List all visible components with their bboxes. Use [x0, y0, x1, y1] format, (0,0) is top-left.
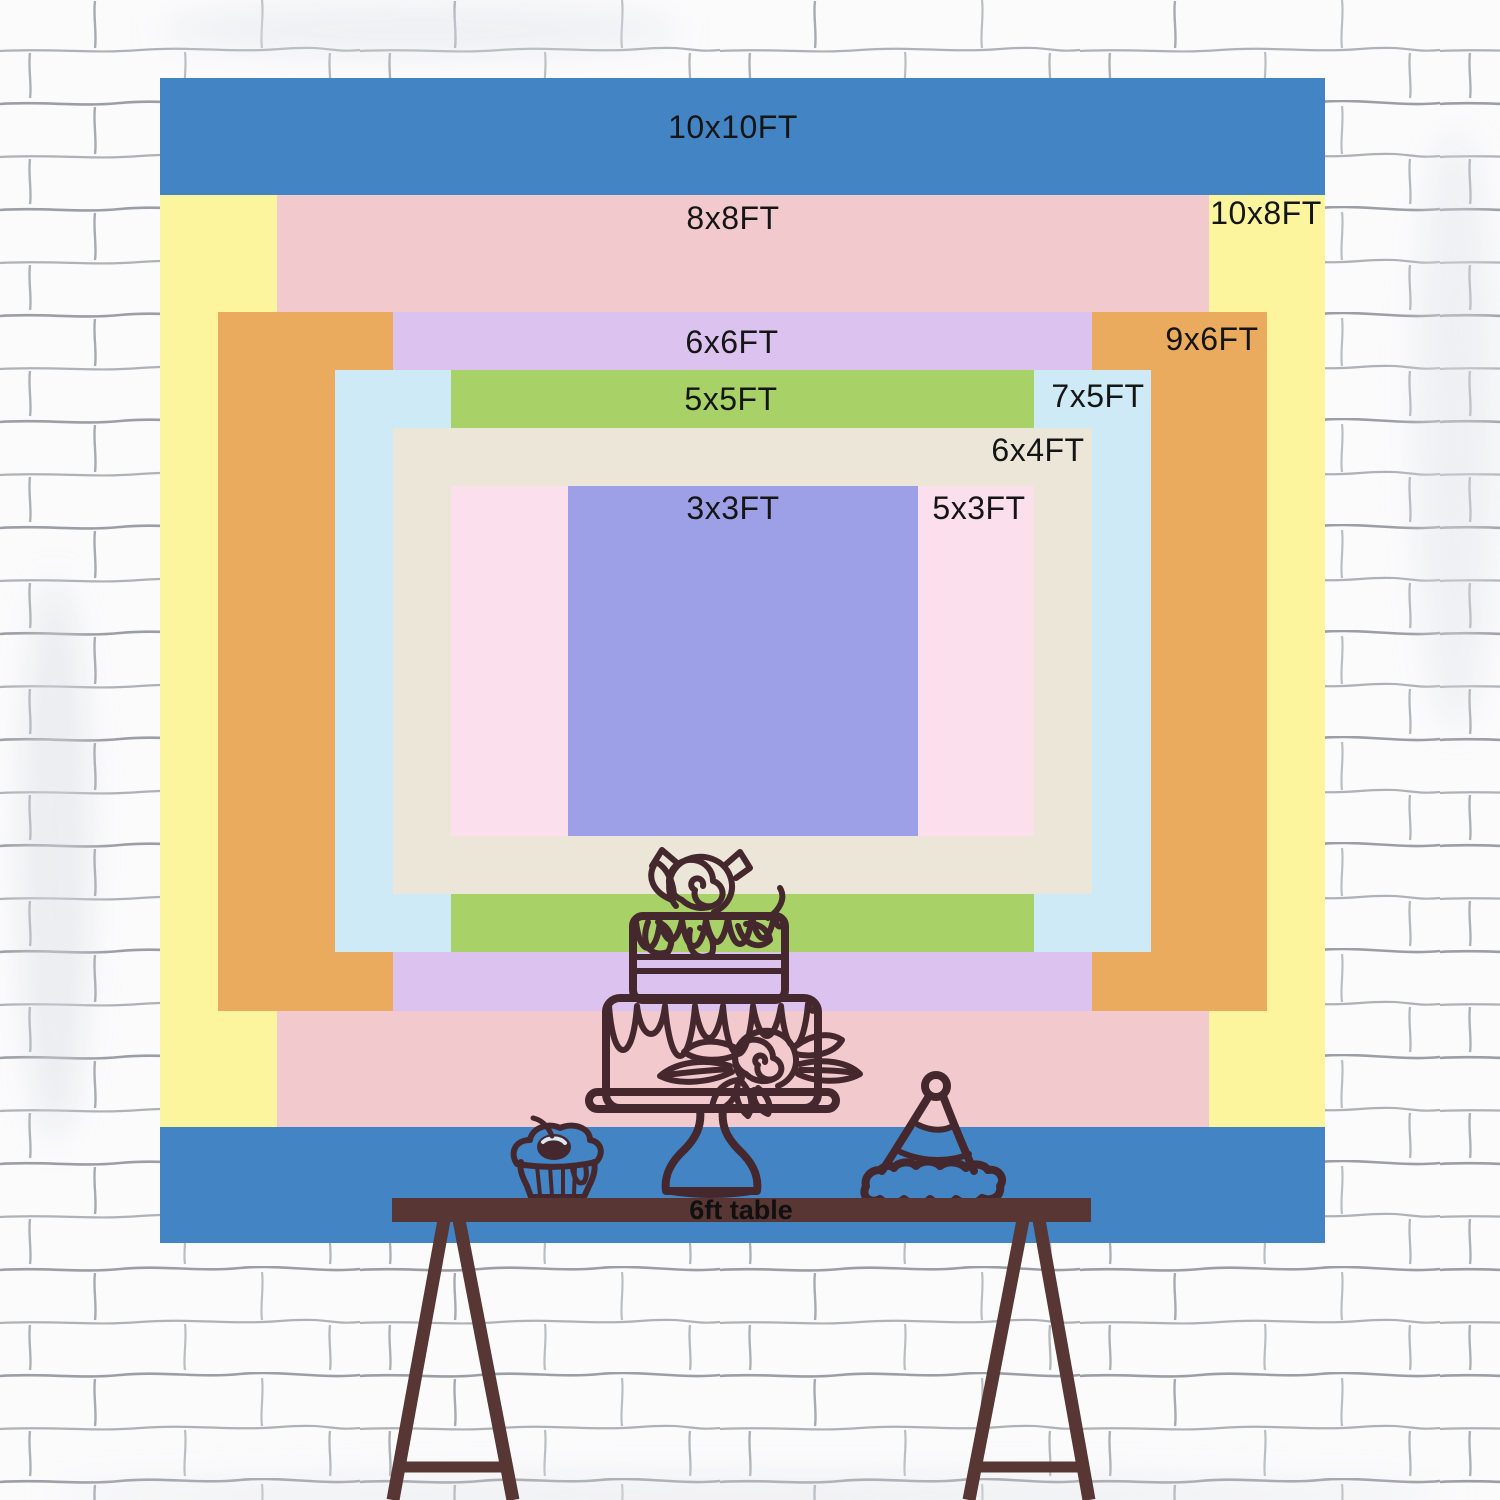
party-hat-icon [864, 1075, 1002, 1204]
table-trestle-right [969, 1220, 1089, 1500]
cupcake-icon [514, 1118, 601, 1197]
backdrop-size-chart: 10x10FT10x8FT8x8FT9x6FT6x6FT7x5FT5x5FT6x… [0, 0, 1500, 1500]
illustration-layer: 6ft table [0, 0, 1500, 1500]
two-tier-cake-icon [589, 850, 860, 1195]
trestle-table: 6ft table [392, 1195, 1091, 1500]
cake-stand [666, 1109, 758, 1191]
table-size-label: 6ft table [689, 1195, 793, 1225]
table-trestle-left [393, 1220, 513, 1500]
